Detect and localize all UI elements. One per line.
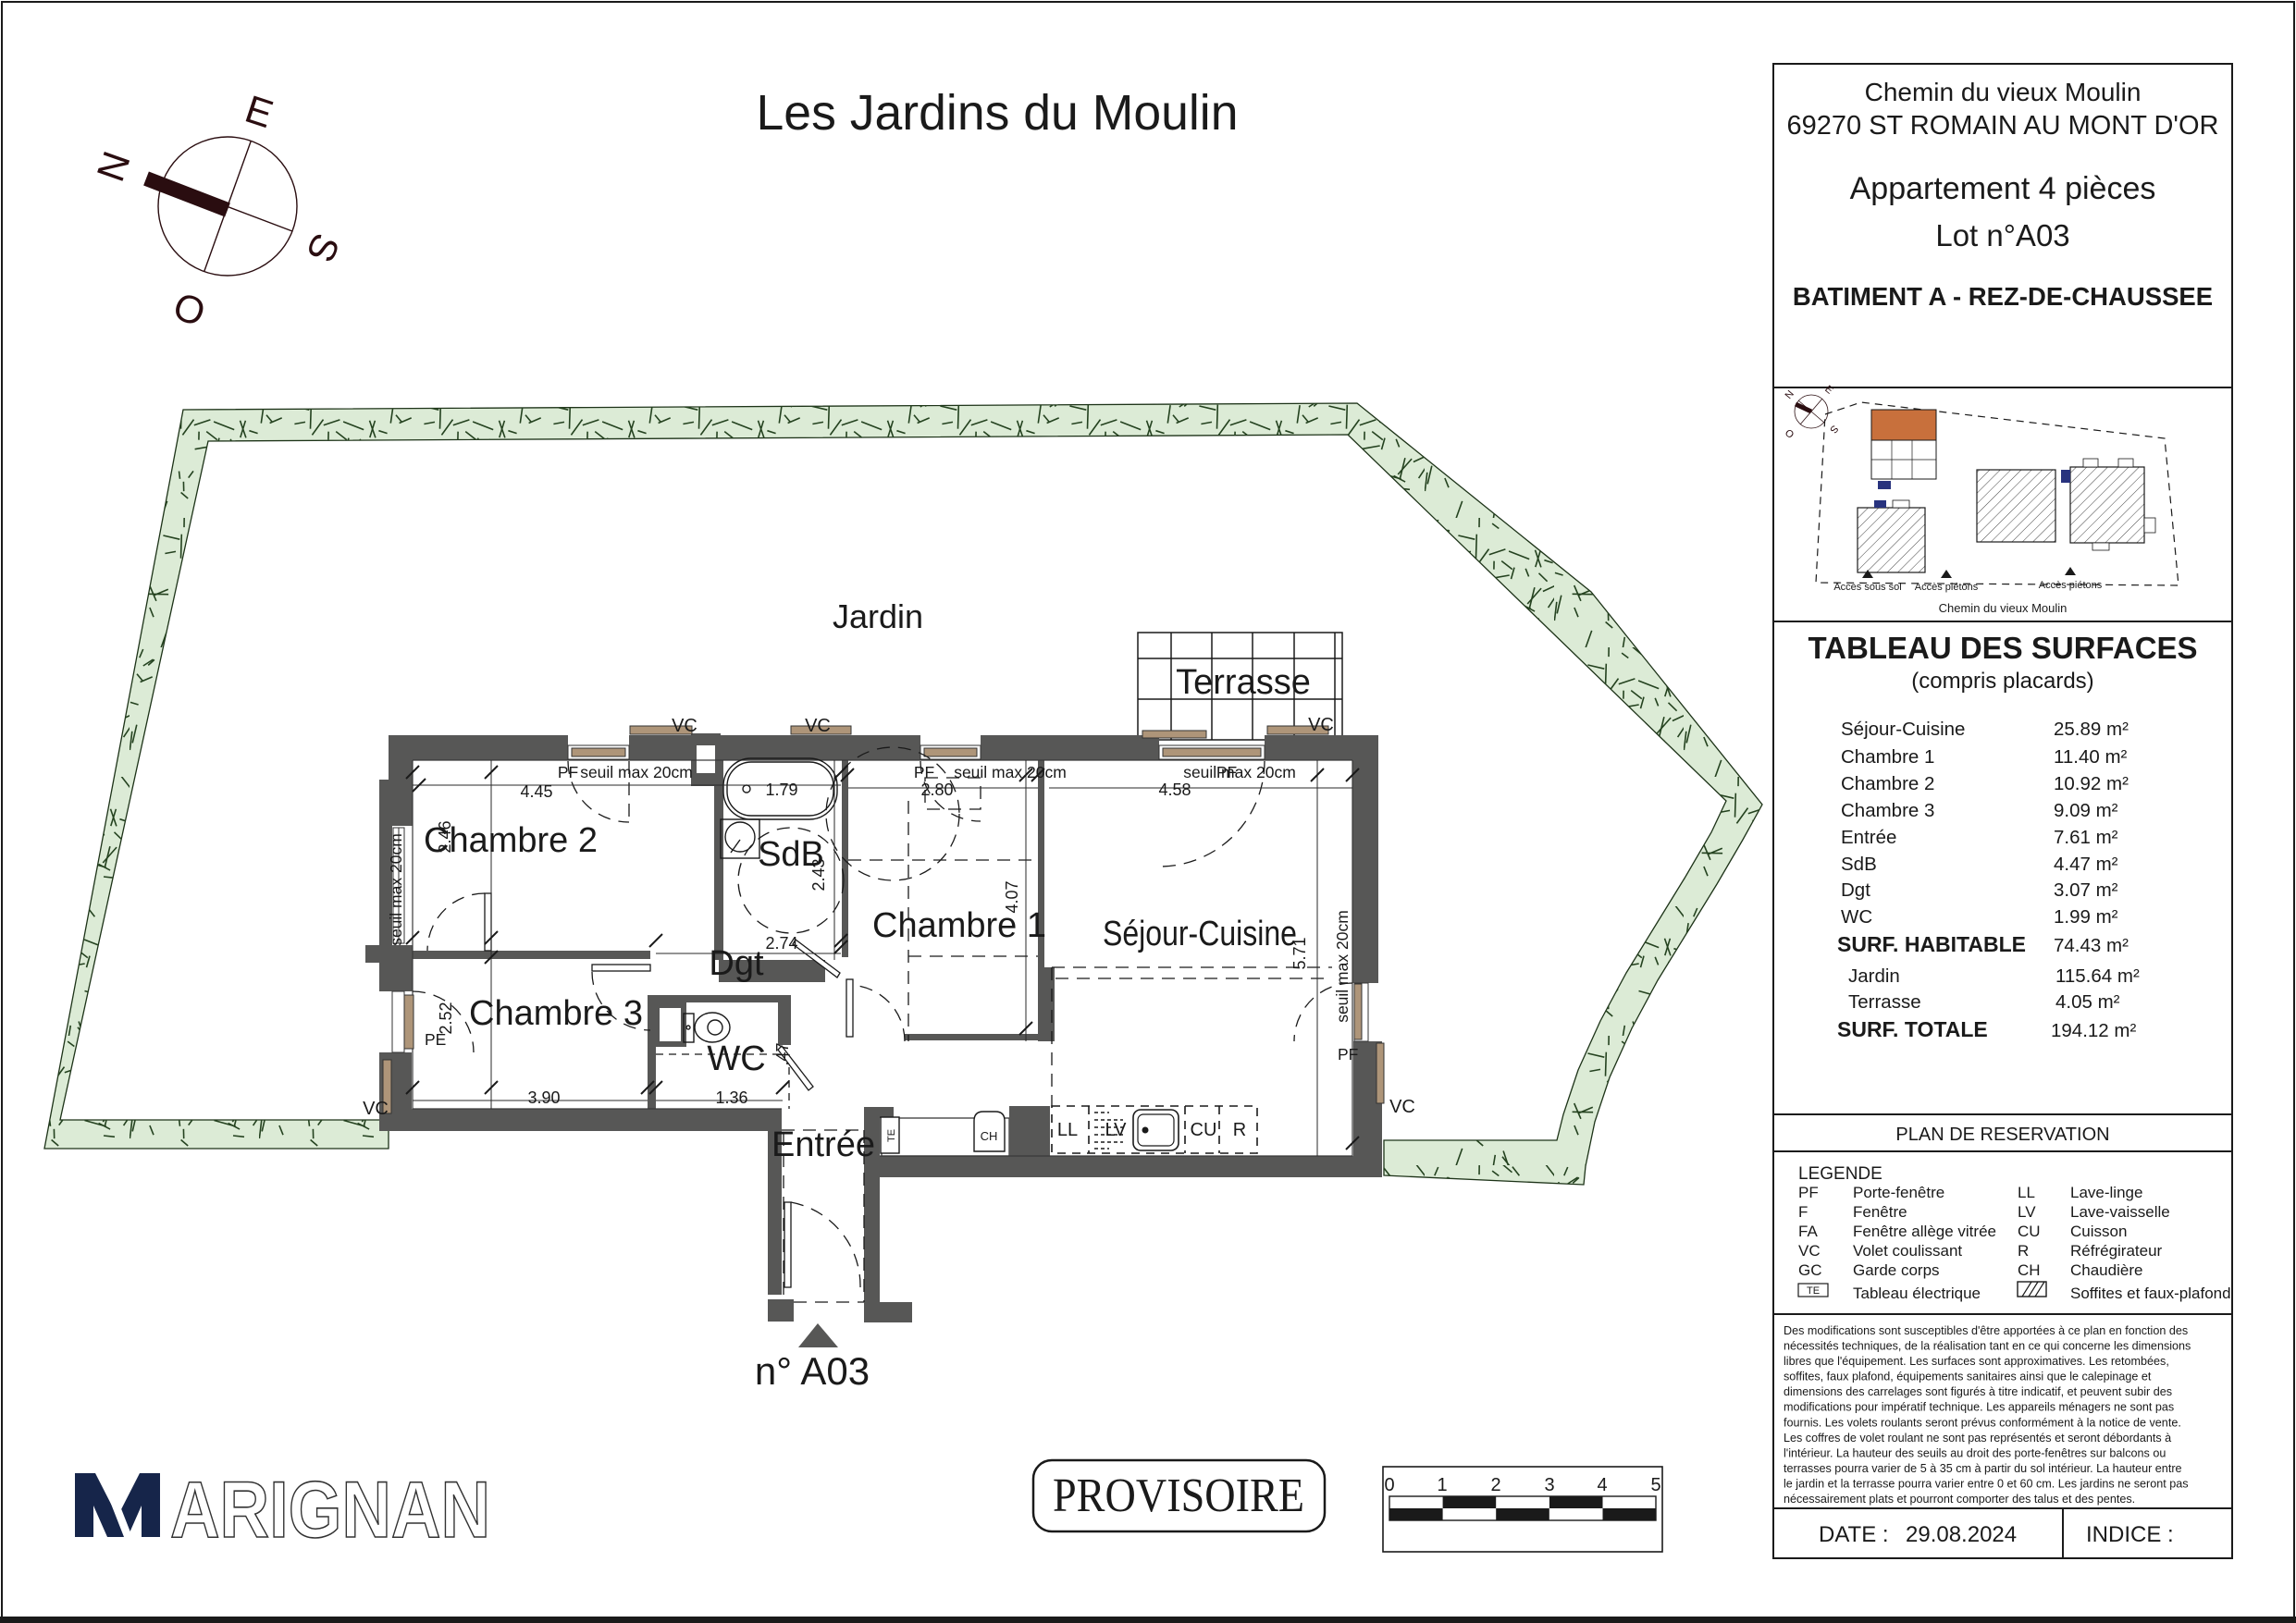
svg-text:PROVISOIRE: PROVISOIRE — [1053, 1469, 1304, 1522]
svg-text:Jardin: Jardin — [1848, 965, 1900, 987]
svg-text:FA: FA — [1798, 1223, 1818, 1240]
svg-text:PF: PF — [558, 763, 578, 781]
svg-text:Porte-fenêtre: Porte-fenêtre — [1853, 1184, 1944, 1201]
svg-text:seuil max 20cm: seuil max 20cm — [580, 763, 693, 781]
svg-text:Garde corps: Garde corps — [1853, 1261, 1940, 1279]
svg-text:LEGENDE: LEGENDE — [1798, 1164, 1882, 1184]
svg-text:7.61 m²: 7.61 m² — [2054, 827, 2118, 848]
svg-text:Dgt: Dgt — [1841, 879, 1870, 901]
svg-text:115.64 m²: 115.64 m² — [2055, 965, 2140, 987]
svg-text:LL: LL — [1057, 1120, 1078, 1140]
svg-text:4.58: 4.58 — [1158, 781, 1191, 799]
svg-text:Lave-linge: Lave-linge — [2070, 1184, 2142, 1201]
svg-text:69270 ST ROMAIN AU MONT D'OR: 69270 ST ROMAIN AU MONT D'OR — [1787, 111, 2219, 141]
svg-text:Chemin du vieux Moulin: Chemin du vieux Moulin — [1939, 601, 2068, 615]
svg-text:Séjour-Cuisine: Séjour-Cuisine — [1841, 719, 1965, 740]
svg-text:CH: CH — [981, 1129, 998, 1143]
svg-text:VC: VC — [363, 1099, 389, 1119]
svg-text:Appartement 4 pièces: Appartement 4 pièces — [1850, 171, 2156, 206]
svg-text:1: 1 — [1437, 1475, 1447, 1495]
svg-text:2.74: 2.74 — [765, 934, 797, 953]
svg-text:25.89 m²: 25.89 m² — [2054, 719, 2129, 740]
svg-text:Terrasse: Terrasse — [1176, 663, 1311, 702]
svg-text:PLAN DE RESERVATION: PLAN DE RESERVATION — [1895, 1125, 2109, 1145]
svg-text:PF: PF — [1798, 1184, 1819, 1201]
svg-text:Cuisson: Cuisson — [2070, 1223, 2127, 1240]
svg-text:2.80: 2.80 — [920, 781, 953, 799]
svg-text:74.43 m²: 74.43 m² — [2054, 935, 2129, 956]
svg-text:seuil max 20cm: seuil max 20cm — [1183, 763, 1296, 781]
svg-text:Accès piétons: Accès piétons — [1915, 582, 1979, 593]
svg-text:PF: PF — [914, 763, 934, 781]
svg-text:CU: CU — [1191, 1120, 1217, 1140]
svg-text:terrasses pourra varier de 5 à: terrasses pourra varier de 5 à 35 cm à p… — [1784, 1462, 2182, 1475]
svg-text:2.46: 2.46 — [436, 820, 454, 853]
svg-text:F: F — [1798, 1203, 1808, 1221]
svg-text:Les Jardins du Moulin: Les Jardins du Moulin — [757, 85, 1239, 141]
svg-text:PF: PF — [1216, 763, 1237, 781]
svg-text:Séjour-Cuisine: Séjour-Cuisine — [1103, 915, 1297, 953]
svg-text:PE: PE — [425, 1030, 446, 1049]
svg-text:R: R — [2018, 1242, 2029, 1260]
svg-text:Les coffres de volet roulant n: Les coffres de volet roulant ne sont pas… — [1784, 1432, 2171, 1445]
svg-text:4.05 m²: 4.05 m² — [2055, 991, 2120, 1013]
svg-text:SURF. HABITABLE: SURF. HABITABLE — [1837, 932, 2026, 956]
svg-text:modifications pour impératif t: modifications pour impératif technique. … — [1784, 1401, 2174, 1414]
svg-text:3: 3 — [1544, 1475, 1554, 1495]
svg-text:libres que l'équipement. Les s: libres que l'équipement. Les surfaces so… — [1784, 1355, 2169, 1368]
svg-text:SdB: SdB — [1841, 854, 1877, 875]
svg-text:4.07: 4.07 — [1003, 880, 1021, 913]
svg-text:SURF. TOTALE: SURF. TOTALE — [1837, 1017, 1988, 1041]
svg-text:11.40 m²: 11.40 m² — [2054, 746, 2128, 768]
svg-text:Lave-vaisselle: Lave-vaisselle — [2070, 1203, 2170, 1221]
svg-text:Chemin du vieux Moulin: Chemin du vieux Moulin — [1865, 78, 2142, 106]
svg-text:Lot n°A03: Lot n°A03 — [1935, 218, 2069, 252]
svg-text:Des modifications sont suscept: Des modifications sont susceptibles d'êt… — [1784, 1324, 2188, 1337]
svg-text:Volet coulissant: Volet coulissant — [1853, 1242, 1962, 1260]
svg-text:Entrée: Entrée — [772, 1125, 875, 1164]
svg-text:Tableau électrique: Tableau électrique — [1853, 1285, 1981, 1302]
svg-text:soffites, faux plafond, équipe: soffites, faux plafond, équipements sani… — [1784, 1371, 2152, 1383]
svg-text:0: 0 — [1384, 1475, 1394, 1495]
svg-text:Chaudière: Chaudière — [2070, 1261, 2142, 1279]
svg-text:Chambre 1: Chambre 1 — [1841, 746, 1934, 768]
svg-text:2.43: 2.43 — [809, 858, 828, 891]
svg-text:VC: VC — [1308, 715, 1334, 735]
svg-text:1.36: 1.36 — [715, 1088, 747, 1107]
svg-text:.47: .47 — [773, 1042, 792, 1065]
svg-text:10.92 m²: 10.92 m² — [2054, 773, 2129, 794]
svg-text:4.47 m²: 4.47 m² — [2054, 854, 2118, 875]
svg-text:Dgt: Dgt — [709, 944, 764, 983]
svg-text:194.12 m²: 194.12 m² — [2051, 1020, 2136, 1041]
svg-text:Chambre 3: Chambre 3 — [469, 994, 643, 1033]
svg-text:INDICE :: INDICE : — [2086, 1522, 2174, 1547]
svg-text:VC: VC — [1389, 1097, 1415, 1117]
svg-text:le jardin et la terrasse pourr: le jardin et la terrasse pourra varier e… — [1784, 1478, 2189, 1491]
svg-text:VC: VC — [1798, 1242, 1821, 1260]
svg-text:VC: VC — [805, 716, 831, 736]
svg-text:nécessités techniques, de la r: nécessités techniques, de la réalisation… — [1784, 1340, 2191, 1353]
svg-text:Réfrégirateur: Réfrégirateur — [2070, 1242, 2163, 1260]
svg-text:n° A03: n° A03 — [755, 1349, 870, 1393]
svg-text:1.99 m²: 1.99 m² — [2054, 906, 2118, 928]
svg-text:TE: TE — [1807, 1285, 1820, 1297]
svg-text:VC: VC — [672, 716, 697, 736]
svg-text:TE: TE — [886, 1129, 897, 1142]
svg-text:l'intérieur. La hauteur des se: l'intérieur. La hauteur des seuils au dr… — [1784, 1446, 2166, 1459]
svg-text:Soffites et faux-plafond: Soffites et faux-plafond — [2070, 1285, 2231, 1302]
svg-text:WC: WC — [1841, 906, 1872, 928]
svg-text:Entrée: Entrée — [1841, 827, 1896, 848]
svg-text:dimensions des carrelages sont: dimensions des carrelages sont figurés à… — [1784, 1385, 2172, 1398]
svg-text:4.45: 4.45 — [520, 782, 552, 801]
svg-text:29.08.2024: 29.08.2024 — [1906, 1522, 2017, 1547]
svg-text:CU: CU — [2018, 1223, 2041, 1240]
svg-text:CH: CH — [2018, 1261, 2041, 1279]
svg-text:PF: PF — [1338, 1045, 1358, 1064]
svg-text:Fenêtre: Fenêtre — [1853, 1203, 1907, 1221]
svg-text:TABLEAU DES SURFACES: TABLEAU DES SURFACES — [1808, 631, 2197, 665]
svg-text:Accès piétons: Accès piétons — [2039, 580, 2103, 591]
svg-text:5.71: 5.71 — [1290, 937, 1309, 969]
svg-text:GC: GC — [1798, 1261, 1822, 1279]
svg-text:Chambre 3: Chambre 3 — [1841, 800, 1934, 821]
svg-text:seuil max 20cm: seuil max 20cm — [954, 763, 1067, 781]
svg-text:fournis. Les volets roulants s: fournis. Les volets roulants seront prév… — [1784, 1416, 2181, 1429]
svg-text:Accès sous sol: Accès sous sol — [1833, 582, 1901, 593]
svg-text:WC: WC — [707, 1039, 765, 1078]
svg-text:(compris placards): (compris placards) — [1911, 669, 2093, 694]
svg-text:3.90: 3.90 — [527, 1088, 560, 1107]
svg-text:ARIGNAN: ARIGNAN — [170, 1466, 490, 1555]
svg-text:BATIMENT A - REZ-DE-CHAUSSEE: BATIMENT A - REZ-DE-CHAUSSEE — [1793, 282, 2213, 311]
svg-text:1.79: 1.79 — [765, 781, 797, 799]
svg-text:3.07 m²: 3.07 m² — [2054, 879, 2118, 901]
svg-text:2: 2 — [1490, 1475, 1500, 1495]
svg-text:Chambre 2: Chambre 2 — [1841, 773, 1934, 794]
svg-text:4: 4 — [1597, 1475, 1607, 1495]
svg-text:R: R — [1233, 1120, 1246, 1140]
svg-text:seuil max 20cm: seuil max 20cm — [387, 833, 405, 946]
svg-text:5: 5 — [1650, 1475, 1660, 1495]
svg-text:nécessairement plats et pourro: nécessairement plats et pourront comport… — [1784, 1493, 2135, 1506]
svg-text:Jardin: Jardin — [833, 597, 923, 635]
svg-text:9.09 m²: 9.09 m² — [2054, 800, 2118, 821]
svg-text:LV: LV — [2018, 1203, 2036, 1221]
svg-text:seuil max 20cm: seuil max 20cm — [1333, 910, 1352, 1023]
svg-text:LV: LV — [1105, 1120, 1128, 1140]
svg-text:DATE :: DATE : — [1819, 1522, 1889, 1547]
svg-text:Terrasse: Terrasse — [1848, 991, 1921, 1013]
svg-text:Fenêtre allège vitrée: Fenêtre allège vitrée — [1853, 1223, 1996, 1240]
svg-text:LL: LL — [2018, 1184, 2035, 1201]
